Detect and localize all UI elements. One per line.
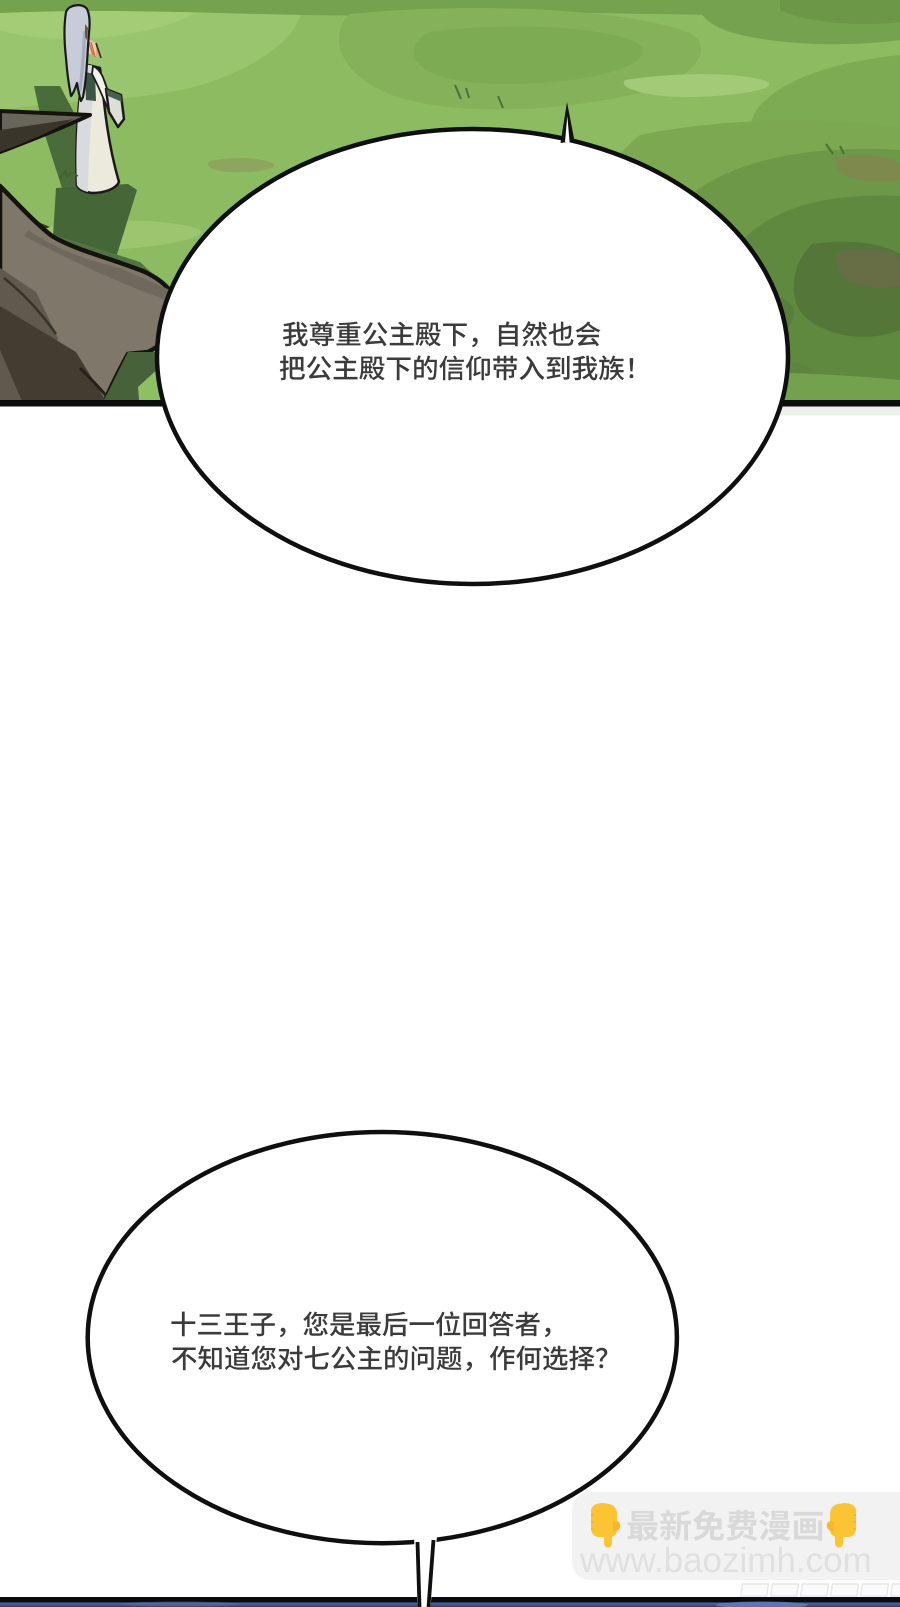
svg-text:www.baozimh.com: www.baozimh.com [579, 1541, 872, 1580]
